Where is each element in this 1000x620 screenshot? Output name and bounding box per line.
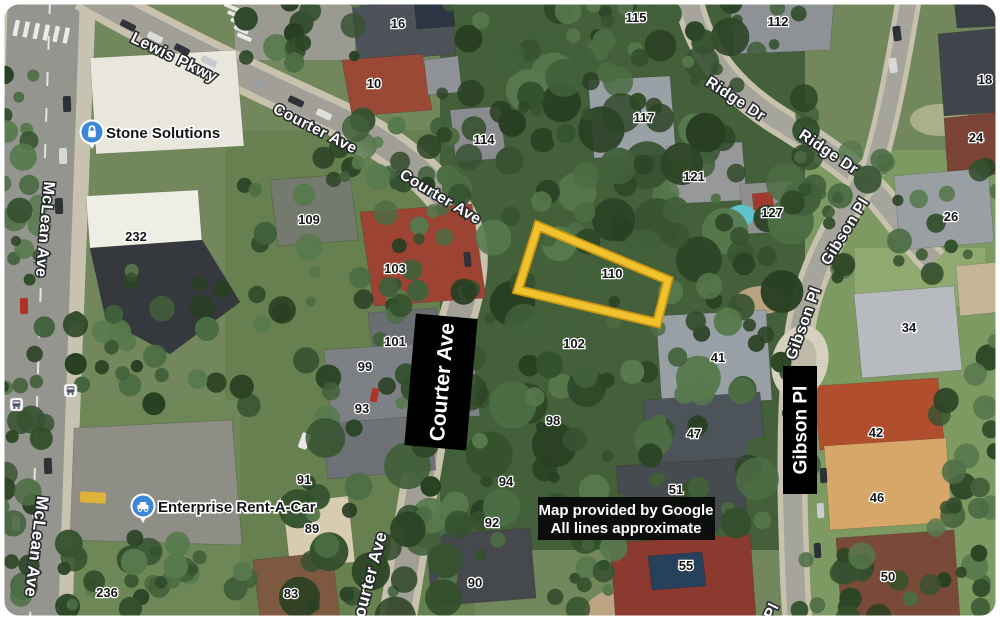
tree <box>971 545 988 562</box>
tree <box>391 566 418 593</box>
house-number-label: 121 <box>683 169 705 184</box>
tree <box>155 368 169 382</box>
tree <box>165 532 190 557</box>
house-number-label: 55 <box>679 558 693 573</box>
tree <box>455 25 483 53</box>
tree <box>574 202 595 223</box>
tree <box>254 222 277 245</box>
tree <box>373 200 398 225</box>
house-number-label: 112 <box>768 14 789 29</box>
house-number-label: 115 <box>626 10 647 25</box>
parked-car <box>20 298 29 314</box>
house-number-label: 34 <box>902 320 917 335</box>
house-number-label: 98 <box>546 413 560 428</box>
house-number-label: 51 <box>669 482 683 497</box>
building <box>824 438 952 530</box>
tree <box>131 360 143 372</box>
building <box>70 420 242 545</box>
house-number-label: 110 <box>602 266 623 281</box>
tree <box>371 136 383 148</box>
tree <box>495 147 523 175</box>
tree <box>4 554 19 569</box>
tree <box>10 143 37 170</box>
tree <box>407 280 429 302</box>
tree <box>248 286 265 303</box>
house-number-label: 90 <box>468 575 482 590</box>
tree <box>696 273 722 299</box>
tree <box>536 421 546 431</box>
tree <box>887 229 912 254</box>
tree <box>284 52 304 72</box>
tree <box>295 35 311 51</box>
tree <box>58 562 71 575</box>
tree <box>939 186 955 202</box>
tree <box>545 59 583 97</box>
tree <box>30 427 53 450</box>
tree <box>410 217 429 236</box>
tree <box>532 456 557 481</box>
parked-car <box>814 543 822 558</box>
house-number-label: 101 <box>384 334 406 349</box>
tree <box>322 382 340 400</box>
tree <box>150 546 161 557</box>
tree <box>927 518 946 537</box>
courter-ave-annotation: Courter Ave <box>404 314 477 451</box>
tree <box>451 279 477 305</box>
tree <box>573 363 598 388</box>
tree <box>117 332 136 351</box>
tree <box>685 21 705 41</box>
tree <box>598 560 609 571</box>
tree <box>634 154 654 174</box>
annotation-text: Gibson Pl <box>791 386 812 475</box>
tree <box>34 316 55 337</box>
tree <box>425 579 462 616</box>
tree <box>582 72 600 90</box>
tree <box>67 599 79 611</box>
tree <box>378 377 396 395</box>
tree <box>645 30 677 62</box>
tree <box>791 6 807 22</box>
house-number-label: 232 <box>125 229 147 244</box>
tree <box>445 511 473 539</box>
tree <box>728 378 755 405</box>
tree <box>326 172 341 187</box>
tree <box>143 345 166 368</box>
parked-car <box>59 148 68 164</box>
house-number-label: 24 <box>969 130 984 145</box>
house-number-label: 127 <box>761 205 783 220</box>
tree <box>155 576 167 588</box>
tree <box>476 220 512 256</box>
tree <box>727 164 746 183</box>
tree <box>490 532 505 547</box>
tree <box>736 457 779 500</box>
house-number-label: 89 <box>305 521 319 536</box>
tree <box>389 294 412 317</box>
tree <box>124 573 138 587</box>
tree <box>456 144 483 171</box>
tree <box>437 165 459 187</box>
tree <box>484 313 495 324</box>
business-label: Enterprise Rent-A-Car <box>158 499 316 516</box>
tree <box>233 562 252 581</box>
tree <box>420 476 441 497</box>
map-attribution: Map provided by Google All lines approxi… <box>538 497 715 540</box>
tree <box>662 197 688 223</box>
house-number-label: 42 <box>869 425 883 440</box>
house-number-label: 83 <box>284 586 298 601</box>
tree <box>293 184 315 206</box>
map-image[interactable]: Stone Solutions Enterprise Rent-A-Car Le… <box>0 0 1000 620</box>
tree <box>832 192 844 204</box>
house-number-label: 26 <box>944 209 958 224</box>
tree <box>192 276 207 291</box>
bus-stop-icon <box>64 384 77 397</box>
parked-car <box>820 468 828 483</box>
tree <box>761 270 804 313</box>
tree <box>104 305 123 324</box>
tree <box>754 512 772 530</box>
house-number-label: 99 <box>358 359 372 374</box>
tree <box>601 14 614 27</box>
tree <box>475 549 486 560</box>
tree <box>903 591 918 606</box>
house-number-label: 103 <box>384 261 406 276</box>
tree <box>518 101 530 113</box>
parked-car <box>817 503 825 518</box>
tree <box>354 289 374 309</box>
tree <box>379 277 399 297</box>
house-number-label: 109 <box>298 212 320 227</box>
tree <box>164 554 189 579</box>
house-number-label: 91 <box>297 472 311 487</box>
tree <box>711 194 721 204</box>
tree <box>747 42 766 61</box>
tree <box>893 255 904 266</box>
tree <box>309 266 321 278</box>
tree <box>933 388 958 413</box>
tree <box>525 387 545 407</box>
tree <box>809 597 825 613</box>
tree <box>963 249 973 259</box>
tree <box>457 80 484 107</box>
tree <box>342 503 357 518</box>
tree <box>115 366 130 381</box>
tree <box>213 281 230 298</box>
tree <box>602 450 614 462</box>
tree <box>798 552 813 567</box>
house-number-label: 10 <box>367 76 381 91</box>
tree <box>536 351 563 378</box>
tree <box>686 311 706 331</box>
business-label: Stone Solutions <box>106 125 220 142</box>
tree <box>349 51 360 62</box>
house-number-label: 93 <box>355 401 369 416</box>
tree <box>234 7 258 31</box>
tree <box>748 335 765 352</box>
parked-car <box>44 458 53 474</box>
tree <box>664 224 689 249</box>
tree <box>70 311 83 324</box>
tree <box>306 297 316 307</box>
tree <box>345 420 362 437</box>
tree <box>390 512 426 548</box>
tree <box>608 296 620 308</box>
tree <box>190 295 215 320</box>
tree <box>19 175 39 195</box>
tree <box>95 360 109 374</box>
tree <box>968 498 989 519</box>
tree <box>572 162 599 189</box>
tree <box>956 567 967 578</box>
tree <box>940 501 953 514</box>
tree <box>668 347 687 366</box>
tree <box>530 128 555 153</box>
house-number-label: 117 <box>634 110 655 125</box>
building <box>342 54 432 116</box>
tree <box>472 433 488 449</box>
tree <box>964 363 987 386</box>
tree <box>848 542 875 569</box>
house-number-label: 47 <box>687 426 701 441</box>
tree <box>188 369 208 389</box>
tree <box>293 347 319 373</box>
house-number-label: 92 <box>485 515 499 530</box>
parked-car <box>80 491 107 503</box>
tree <box>969 160 991 182</box>
tree <box>620 360 644 384</box>
tree <box>926 214 945 233</box>
tree <box>581 108 593 120</box>
house-number-label: 94 <box>499 474 514 489</box>
house-number-label: 41 <box>711 350 725 365</box>
tree <box>193 550 207 564</box>
tree <box>428 543 463 578</box>
tree <box>55 530 83 558</box>
tree <box>413 233 424 244</box>
tree <box>531 191 552 212</box>
tree <box>547 589 563 605</box>
tree <box>916 249 928 261</box>
tree <box>65 353 87 375</box>
building <box>956 262 1000 316</box>
tree <box>436 88 448 100</box>
tree <box>392 238 407 253</box>
tree <box>597 62 618 83</box>
house-number-label: 46 <box>870 490 884 505</box>
tree <box>602 584 614 596</box>
tree <box>435 228 453 246</box>
tree <box>558 314 580 336</box>
tree <box>649 473 663 487</box>
tree <box>593 29 616 52</box>
tree <box>715 213 733 231</box>
tree <box>254 316 271 333</box>
tree <box>577 577 592 592</box>
tree <box>352 156 365 169</box>
tree <box>921 262 944 285</box>
tree <box>396 397 408 409</box>
tree <box>970 478 990 498</box>
tree <box>388 117 406 135</box>
tree <box>942 460 966 484</box>
tree <box>30 375 44 389</box>
tree <box>682 56 694 68</box>
tree <box>339 587 354 602</box>
building <box>648 552 706 590</box>
tree <box>733 253 755 275</box>
tree <box>638 443 662 467</box>
attribution-line1: Map provided by Google <box>538 502 713 519</box>
gibson-pl-annotation: Gibson Pl <box>783 366 817 494</box>
tree <box>436 127 452 143</box>
tree <box>268 296 296 324</box>
tree <box>340 171 351 182</box>
tree <box>944 240 958 254</box>
tree <box>711 18 749 56</box>
tree <box>26 346 43 363</box>
tree <box>341 13 366 38</box>
house-number-label: 236 <box>96 585 118 600</box>
tree <box>823 217 835 229</box>
tree <box>656 1 682 27</box>
tree <box>126 272 137 283</box>
tree <box>568 263 594 289</box>
house-number-label: 18 <box>978 72 992 87</box>
tree <box>720 507 751 538</box>
tree <box>121 549 148 576</box>
tree <box>822 205 835 218</box>
tree <box>306 418 346 458</box>
tree <box>239 50 254 65</box>
tree <box>206 372 226 392</box>
tree <box>652 414 666 428</box>
tree <box>600 148 637 185</box>
tree <box>149 296 175 322</box>
tree <box>743 319 756 332</box>
attribution-line2: All lines approximate <box>551 520 702 537</box>
tree <box>195 317 219 341</box>
tree <box>27 70 39 82</box>
tree <box>979 400 991 412</box>
house-number-label: 102 <box>563 336 585 351</box>
tree <box>504 304 543 343</box>
tree <box>556 124 576 144</box>
tree <box>187 563 199 575</box>
tree <box>562 436 572 446</box>
tree <box>248 183 262 197</box>
tree <box>566 28 580 42</box>
tree <box>142 392 165 415</box>
tree <box>909 190 928 209</box>
tree <box>529 102 544 117</box>
tree <box>688 477 710 499</box>
parked-car <box>63 96 72 112</box>
tree <box>230 375 254 399</box>
tree <box>757 246 777 266</box>
tree <box>296 233 323 260</box>
bus-stop-icon <box>10 398 23 411</box>
tree <box>799 183 812 196</box>
tree <box>11 236 21 246</box>
tree <box>972 579 990 597</box>
tree <box>485 38 524 77</box>
tree <box>919 574 941 596</box>
house-number-label: 50 <box>881 569 895 584</box>
tree <box>12 378 28 394</box>
tree <box>790 84 818 112</box>
satellite-map: Stone Solutions Enterprise Rent-A-Car Le… <box>0 0 1000 620</box>
tree <box>6 430 19 443</box>
tree <box>814 187 826 199</box>
tree <box>794 151 807 164</box>
tree <box>13 92 24 103</box>
tree <box>126 530 143 547</box>
house-number-label: 16 <box>391 16 405 31</box>
tree <box>345 473 373 501</box>
tree <box>892 195 903 206</box>
tree <box>7 198 33 224</box>
house-number-label: 114 <box>474 132 496 147</box>
tree <box>499 109 527 137</box>
tree <box>472 12 489 29</box>
tree <box>769 39 780 50</box>
tree <box>365 164 391 190</box>
tree <box>314 533 339 558</box>
tree <box>502 207 521 226</box>
tree <box>714 308 742 336</box>
tree <box>349 267 371 289</box>
